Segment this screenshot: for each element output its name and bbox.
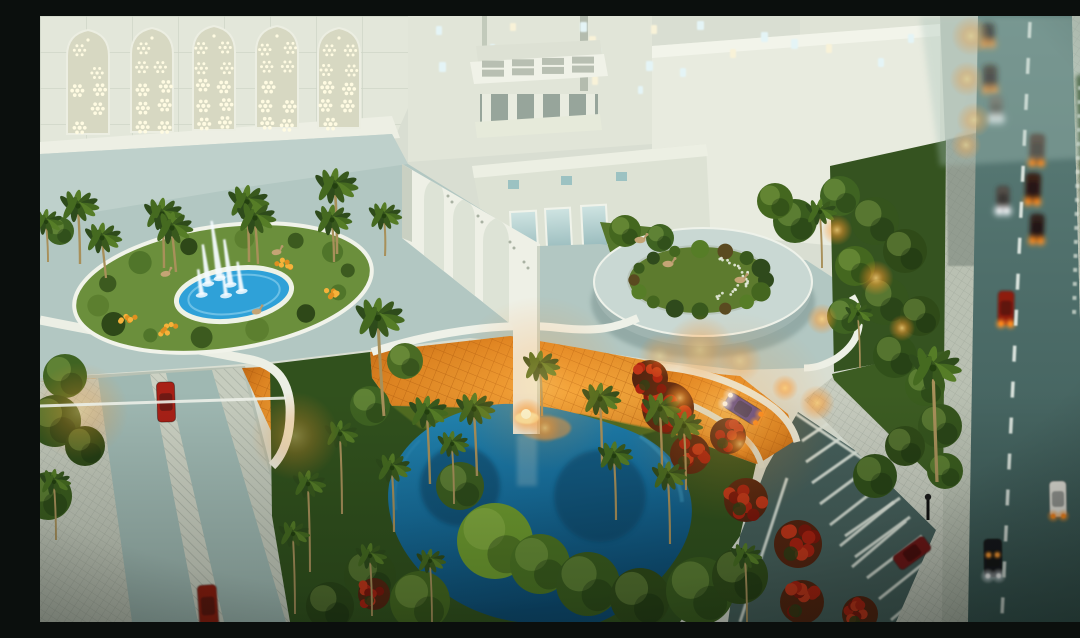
architectural-model-photo [40, 16, 1080, 622]
bottom-shade [40, 16, 1080, 622]
